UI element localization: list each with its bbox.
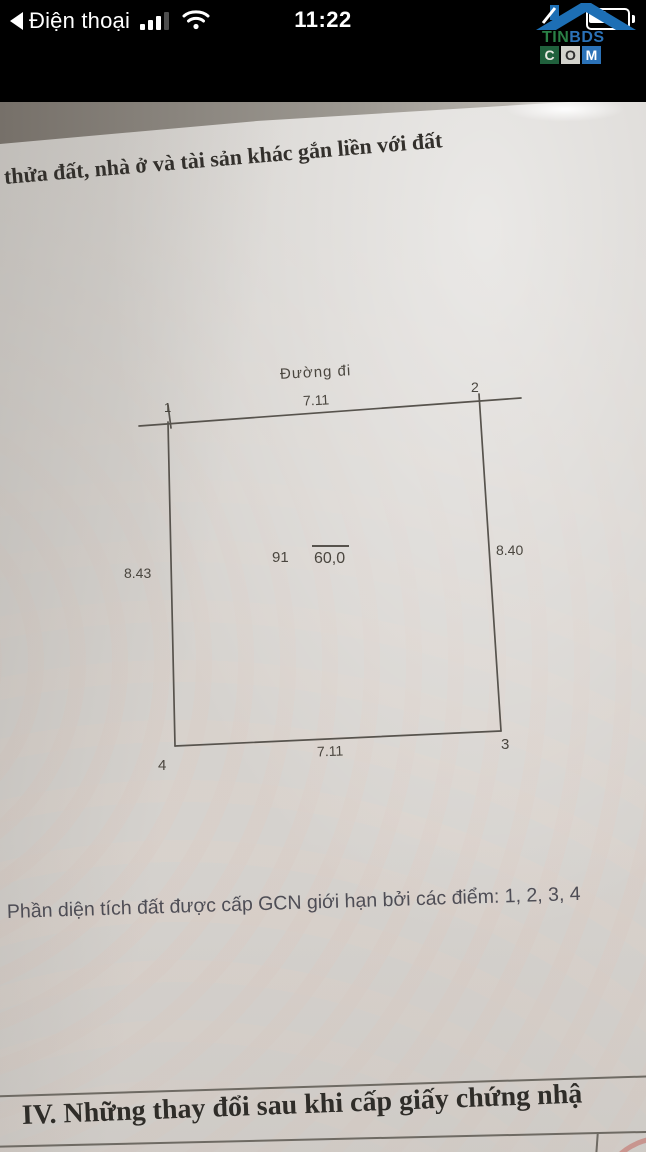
- plot-diagram-lines: [0, 102, 646, 1152]
- logo-letter-m: M: [582, 46, 601, 64]
- back-chevron-icon: [10, 12, 23, 30]
- dim-top: 7.11: [303, 391, 330, 408]
- back-app-label: Điện thoại: [29, 8, 130, 34]
- cellular-signal-icon: [140, 12, 174, 30]
- dim-bottom: 7.11: [317, 743, 344, 760]
- back-to-app-button[interactable]: Điện thoại: [10, 6, 130, 36]
- logo-text-tinbds: TINBDS: [542, 29, 605, 47]
- corner-label-4: 4: [158, 757, 166, 774]
- dim-right: 8.40: [496, 542, 523, 558]
- logo-text-bds: BDS: [569, 29, 604, 46]
- plot-area-value: 60,0: [312, 545, 349, 568]
- tinbds-watermark-logo: TINBDS C O M: [536, 2, 640, 68]
- corner-label-3: 3: [501, 736, 509, 753]
- corner-label-1: 1: [164, 400, 171, 415]
- dim-left: 8.43: [124, 565, 151, 581]
- phone-screenshot: Điện thoại 11:22 TINBDS C O M: [0, 0, 646, 1152]
- corner-label-2: 2: [471, 379, 479, 395]
- wifi-icon: [182, 9, 210, 30]
- logo-text-tin: TIN: [542, 29, 569, 46]
- plot-number: 91: [272, 549, 289, 566]
- status-bar: Điện thoại 11:22 TINBDS C O M: [0, 0, 646, 102]
- logo-letter-o: O: [561, 46, 580, 64]
- status-time: 11:22: [294, 7, 352, 33]
- land-certificate-photo: thửa đất, nhà ở và tài sản khác gắn liền…: [0, 102, 646, 1152]
- logo-text-com: C O M: [540, 46, 601, 64]
- logo-letter-c: C: [540, 46, 559, 64]
- house-roof-icon: [536, 2, 636, 32]
